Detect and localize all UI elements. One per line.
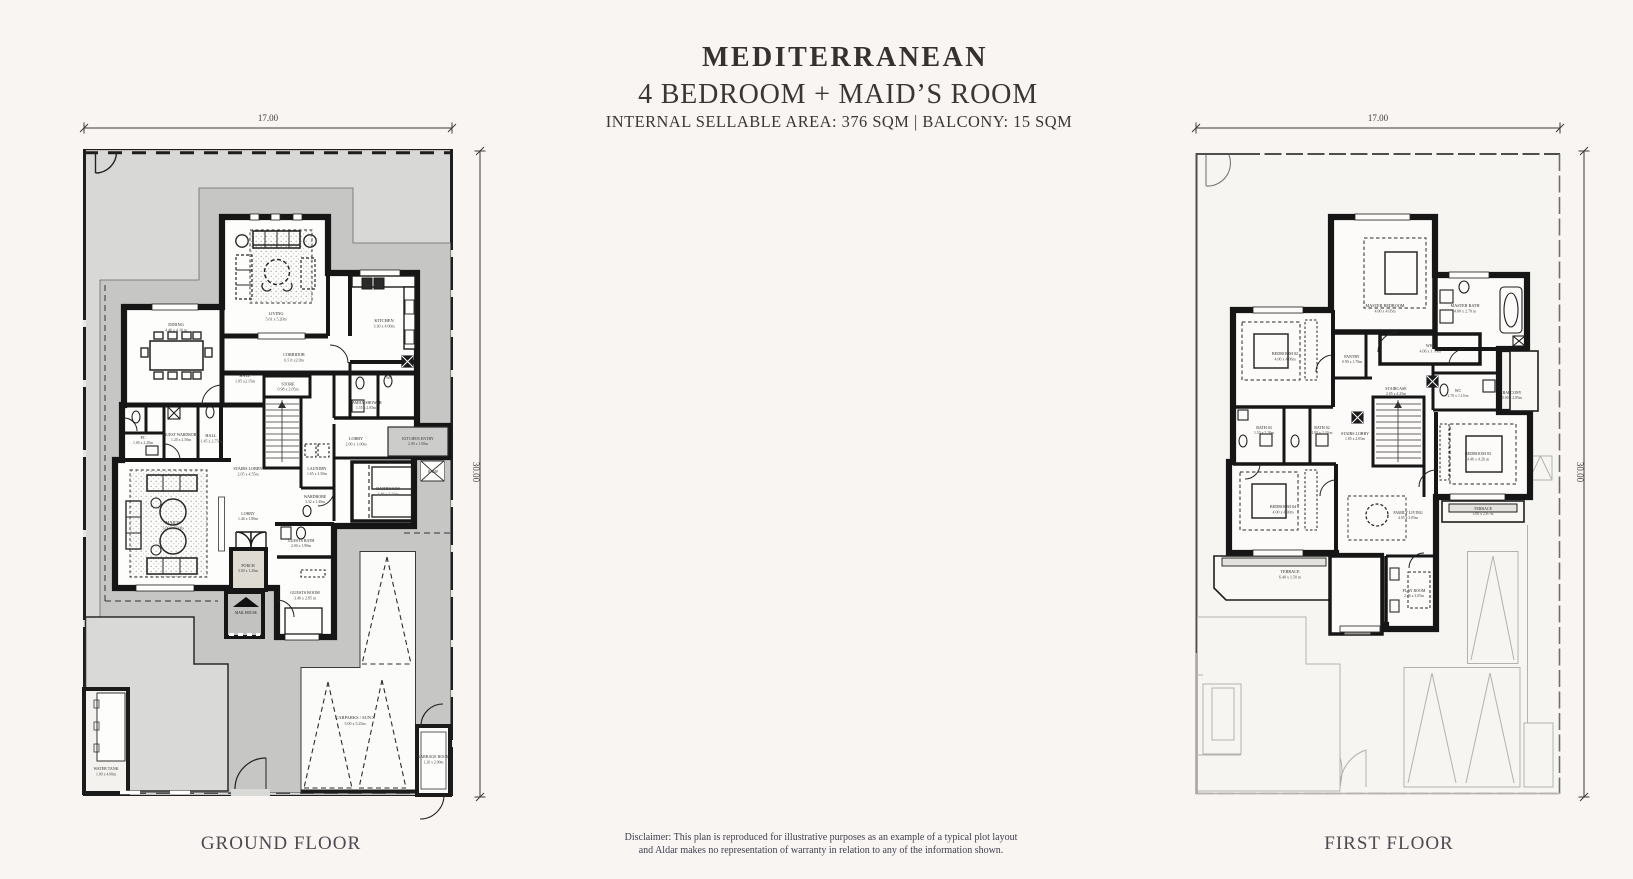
svg-text:GROUND FLOOR: GROUND FLOOR	[201, 833, 361, 854]
svg-text:LOBBY: LOBBY	[349, 436, 363, 441]
svg-text:4.00 x 4.05m: 4.00 x 4.05m	[1374, 309, 1396, 314]
svg-text:1.05 x2.15m: 1.05 x2.15m	[235, 379, 256, 384]
svg-text:HALL: HALL	[205, 433, 217, 438]
svg-text:STAIRS LOBBY: STAIRS LOBBY	[233, 466, 262, 471]
svg-text:PANTRY: PANTRY	[1344, 354, 1360, 359]
svg-text:2.70 x 1.10 m: 2.70 x 1.10 m	[1448, 394, 1469, 398]
svg-text:GUESTS BATH: GUESTS BATH	[288, 538, 315, 543]
svg-text:5.01 x 5.20m: 5.01 x 5.20m	[265, 317, 287, 322]
svg-text:PC: PC	[141, 435, 146, 440]
svg-text:PLAY ROOM: PLAY ROOM	[1403, 588, 1426, 593]
svg-text:3.00 x 1.20m: 3.00 x 1.20m	[238, 569, 258, 573]
svg-text:1.65 x 2.50m: 1.65 x 2.50m	[307, 472, 327, 476]
svg-text:MAJLIS: MAJLIS	[165, 520, 181, 525]
svg-text:6.40 x 1.50 m: 6.40 x 1.50 m	[1279, 575, 1302, 580]
svg-text:2.05 x 4.55m: 2.05 x 4.55m	[237, 472, 259, 477]
svg-text:MASTER BATH: MASTER BATH	[1451, 303, 1480, 308]
svg-text:4 BEDROOM + MAID’S ROOM: 4 BEDROOM + MAID’S ROOM	[638, 79, 1038, 110]
svg-text:STAIRCASE: STAIRCASE	[1385, 386, 1407, 391]
svg-text:0.90 x 1.70m: 0.90 x 1.70m	[1342, 360, 1362, 364]
svg-text:6.5 ft x2.0m: 6.5 ft x2.0m	[284, 358, 304, 363]
svg-text:Disclaimer: This plan is repr: Disclaimer: This plan is reproduced for …	[625, 832, 1018, 843]
svg-text:BALCONY: BALCONY	[1503, 391, 1522, 395]
svg-text:GUEST WARDROBE: GUEST WARDROBE	[163, 433, 199, 437]
svg-text:4.00 x 4.30m: 4.00 x 4.30m	[1272, 510, 1294, 515]
svg-text:FAMILY LIVING: FAMILY LIVING	[1393, 510, 1422, 515]
svg-text:3.30 x 4.00m: 3.30 x 4.00m	[373, 324, 395, 329]
svg-text:1.85 x 2.20 m: 1.85 x 2.20 m	[1312, 431, 1333, 435]
svg-text:CARPARKS / SUN.S: CARPARKS / SUN.S	[335, 715, 375, 720]
svg-text:MAIL HOUSE: MAIL HOUSE	[235, 611, 258, 615]
svg-text:1.20 x 2.00m: 1.20 x 2.00m	[423, 761, 443, 765]
svg-text:4.05 x 3.05m: 4.05 x 3.05m	[1398, 516, 1418, 520]
svg-text:1.20 x 2.50m: 1.20 x 2.50m	[171, 438, 191, 442]
svg-text:5.00 x 5.25m: 5.00 x 5.25m	[344, 721, 366, 726]
svg-text:4.06 x 1.70m: 4.06 x 1.70m	[1419, 349, 1441, 354]
svg-text:INTERNAL SELLABLE AREA: 376 S: INTERNAL SELLABLE AREA: 376 SQM | BALCON…	[606, 112, 1072, 131]
svg-text:30.00: 30.00	[471, 462, 481, 483]
svg-text:WARDROBE: WARDROBE	[304, 494, 327, 499]
svg-text:4.00 x 2.70 m: 4.00 x 2.70 m	[1454, 309, 1477, 314]
svg-text:LIVING: LIVING	[268, 311, 284, 316]
svg-text:2.46 x 2.22m: 2.46 x 2.22m	[377, 492, 399, 497]
svg-text:BATHROOM: BATHROOM	[376, 486, 400, 491]
svg-text:1.00 x 4.00m: 1.00 x 4.00m	[96, 773, 116, 777]
svg-text:WC: WC	[386, 376, 393, 380]
svg-text:0.98 x 2.05m: 0.98 x 2.05m	[277, 387, 299, 392]
svg-text:3.00 x 2.87 m: 3.00 x 2.87 m	[1473, 512, 1494, 516]
svg-text:3.40 x 2.85 m: 3.40 x 2.85 m	[294, 596, 317, 601]
svg-text:LAUNDRY: LAUNDRY	[307, 466, 326, 471]
svg-text:1.46 x 1.80m: 1.46 x 1.80m	[238, 517, 258, 521]
svg-text:BEDROOM 02: BEDROOM 02	[1272, 351, 1298, 356]
svg-text:BEDROOM 03: BEDROOM 03	[1465, 451, 1491, 456]
svg-text:1.00 x 2.20m: 1.00 x 2.20m	[133, 441, 153, 445]
svg-text:0.00 x 2.85m: 0.00 x 2.85m	[1502, 396, 1522, 400]
svg-text:30.00: 30.00	[1575, 462, 1585, 483]
svg-text:WC: WC	[1455, 388, 1462, 393]
svg-text:LOBBY: LOBBY	[241, 511, 255, 516]
svg-text:FAMILY SHOWER: FAMILY SHOWER	[350, 401, 382, 405]
svg-text:KITCHEN ENTRY: KITCHEN ENTRY	[402, 436, 434, 441]
svg-text:4.46 x 4.26 m: 4.46 x 4.26 m	[1467, 457, 1490, 462]
svg-text:and Aldar makes no representat: and Aldar makes no representation of war…	[639, 845, 1004, 856]
svg-text:TERRACE: TERRACE	[1474, 506, 1493, 511]
svg-text:RAMP: RAMP	[428, 470, 438, 474]
svg-text:2.00 x 1.00m: 2.00 x 1.00m	[408, 442, 428, 446]
svg-text:HALL: HALL	[239, 373, 251, 378]
svg-text:MASTER BEDROOM: MASTER BEDROOM	[1366, 303, 1405, 308]
svg-text:5.00 x 5.20m: 5.00 x 5.20m	[162, 526, 184, 531]
svg-text:DINING: DINING	[168, 322, 184, 327]
svg-text:STAIRS LOBBY: STAIRS LOBBY	[1341, 431, 1369, 436]
svg-text:4.00 x 4.06m: 4.00 x 4.06m	[1274, 357, 1296, 362]
svg-text:WIC: WIC	[1426, 343, 1434, 348]
svg-text:BATH 02: BATH 02	[1314, 425, 1329, 430]
svg-text:2.46 x 3.05m: 2.46 x 3.05m	[1404, 594, 1424, 598]
svg-text:2.00 x 1.90m: 2.00 x 1.90m	[291, 544, 311, 548]
svg-text:KITCHEN: KITCHEN	[374, 318, 394, 323]
svg-text:GARBAGE ROOM: GARBAGE ROOM	[417, 754, 450, 759]
svg-text:1.55 x 2.20m: 1.55 x 2.20m	[1254, 431, 1274, 435]
svg-text:4.46 x 4.10 m: 4.46 x 4.10 m	[165, 328, 188, 333]
svg-text:PORCH: PORCH	[241, 563, 254, 568]
svg-text:WATER TANK: WATER TANK	[93, 766, 118, 771]
svg-text:FIRST FLOOR: FIRST FLOOR	[1324, 833, 1453, 854]
svg-text:CORRIDOR: CORRIDOR	[283, 352, 305, 357]
svg-text:17.00: 17.00	[258, 113, 279, 123]
svg-text:3.32 x 1.40m: 3.32 x 1.40m	[305, 500, 325, 504]
svg-text:2.05 x 4.25m: 2.05 x 4.25m	[1386, 392, 1406, 396]
svg-text:2.00 x 1.00m: 2.00 x 1.00m	[345, 442, 367, 447]
svg-text:BEDROOM 04: BEDROOM 04	[1270, 504, 1297, 509]
svg-text:TERRACE: TERRACE	[1280, 569, 1300, 574]
svg-text:1.85 x 2.05m: 1.85 x 2.05m	[1345, 437, 1365, 441]
svg-text:17.00: 17.00	[1368, 113, 1389, 123]
svg-text:MEDITERRANEAN: MEDITERRANEAN	[702, 42, 988, 73]
svg-text:BATH 03: BATH 03	[1256, 425, 1271, 430]
svg-text:1.55 x 2.05m: 1.55 x 2.05m	[356, 406, 376, 410]
svg-text:1.45 x 2.75m: 1.45 x 2.75m	[200, 439, 222, 444]
svg-text:GUESTS ROOM: GUESTS ROOM	[290, 590, 320, 595]
